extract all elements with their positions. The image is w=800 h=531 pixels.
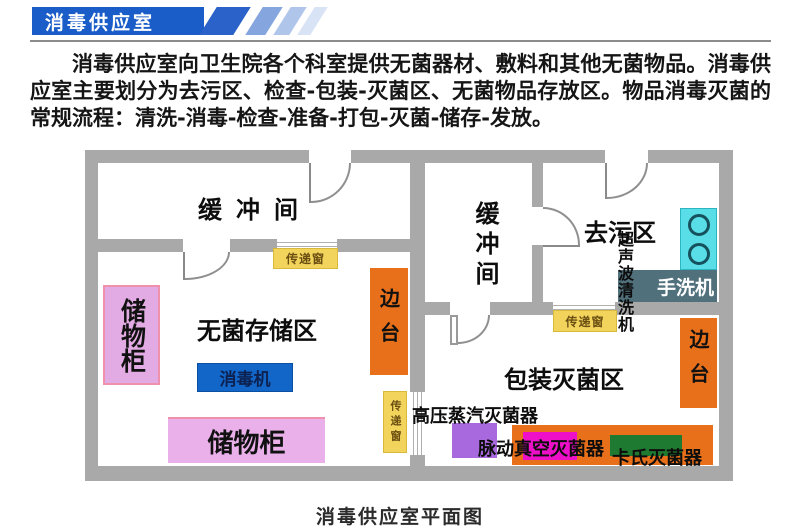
cassette-sterilizer-label: 卡氏灭菌器 bbox=[612, 444, 702, 470]
wall-storage-top-b bbox=[230, 239, 277, 252]
wall-storage-top-c bbox=[337, 239, 410, 252]
wall-packing-top-b bbox=[490, 302, 553, 315]
pass-window-center: 传递窗 bbox=[383, 391, 407, 453]
packing-zone-label: 包装灭菌区 bbox=[504, 360, 624, 395]
wall-packing-top-a bbox=[425, 302, 450, 315]
pulse-vacuum-sterilizer-label: 脉动真空灭菌器 bbox=[478, 435, 604, 461]
side-table-left-label: 边台 bbox=[375, 288, 404, 356]
pass-window-packing-label: 传递窗 bbox=[565, 313, 604, 330]
storage-cabinet-left: 储物柜 bbox=[103, 285, 160, 385]
pass-window-storage-label: 传递窗 bbox=[286, 250, 325, 267]
wall-right bbox=[719, 150, 733, 481]
wall-center-stub bbox=[410, 455, 425, 466]
door-arc-decontam-top bbox=[607, 163, 648, 199]
intro-paragraph: 消毒供应室向卫生院各个科室提供无菌器材、敷料和其他无菌物品。消毒供应室主要划分为… bbox=[30, 51, 771, 132]
door-arc-buffer-left-top bbox=[311, 163, 351, 203]
door-leaf-packing bbox=[450, 315, 458, 345]
disinfector-label: 消毒机 bbox=[220, 365, 271, 390]
ultrasonic-cleaner-label: 超声波清洗机 bbox=[612, 231, 636, 333]
hand-washer-label: 手洗机 bbox=[657, 273, 714, 300]
wall-top-middle bbox=[351, 150, 605, 163]
header-divider bbox=[30, 40, 771, 42]
door-arc-storage bbox=[185, 252, 230, 280]
wall-top-left bbox=[85, 150, 309, 163]
wall-storage-top-a bbox=[98, 239, 183, 252]
header-bar: 消毒供应室 bbox=[32, 7, 204, 35]
wash-sink bbox=[680, 208, 717, 270]
storage-cabinet-bottom-label: 储物柜 bbox=[207, 423, 285, 460]
sink-basin-bottom bbox=[688, 243, 710, 265]
side-table-right-label: 边台 bbox=[684, 329, 713, 397]
figure-caption: 消毒供应室平面图 bbox=[0, 502, 800, 529]
wall-center-upper bbox=[410, 163, 425, 392]
storage-cabinet-left-label: 储物柜 bbox=[114, 298, 150, 373]
pass-window-packing: 传递窗 bbox=[553, 310, 617, 332]
buffer-room-left-label: 缓冲间 bbox=[198, 190, 312, 225]
door-arc-buffer-right bbox=[543, 207, 580, 245]
wall-buffer-decontam-a bbox=[532, 163, 543, 207]
steam-sterilizer-label: 高压蒸汽灭菌器 bbox=[412, 402, 538, 428]
sink-basin-top bbox=[688, 214, 710, 236]
disinfector-machine: 消毒机 bbox=[197, 363, 293, 392]
buffer-room-right-label: 缓冲间 bbox=[468, 201, 503, 291]
pass-window-center-label: 传递窗 bbox=[387, 400, 403, 445]
side-table-left: 边台 bbox=[370, 268, 408, 375]
storage-cabinet-bottom: 储物柜 bbox=[168, 417, 325, 463]
door-leaf-buffer-right bbox=[543, 245, 580, 247]
sterile-storage-zone-label: 无菌存储区 bbox=[197, 311, 317, 346]
page-title: 消毒供应室 bbox=[45, 8, 155, 35]
side-table-right: 边台 bbox=[680, 318, 717, 408]
stripe-dark bbox=[199, 7, 250, 35]
wall-left bbox=[85, 150, 98, 481]
door-arc-packing bbox=[458, 315, 490, 344]
wall-buffer-decontam-b bbox=[532, 245, 543, 302]
pass-window-storage: 传递窗 bbox=[273, 248, 338, 269]
